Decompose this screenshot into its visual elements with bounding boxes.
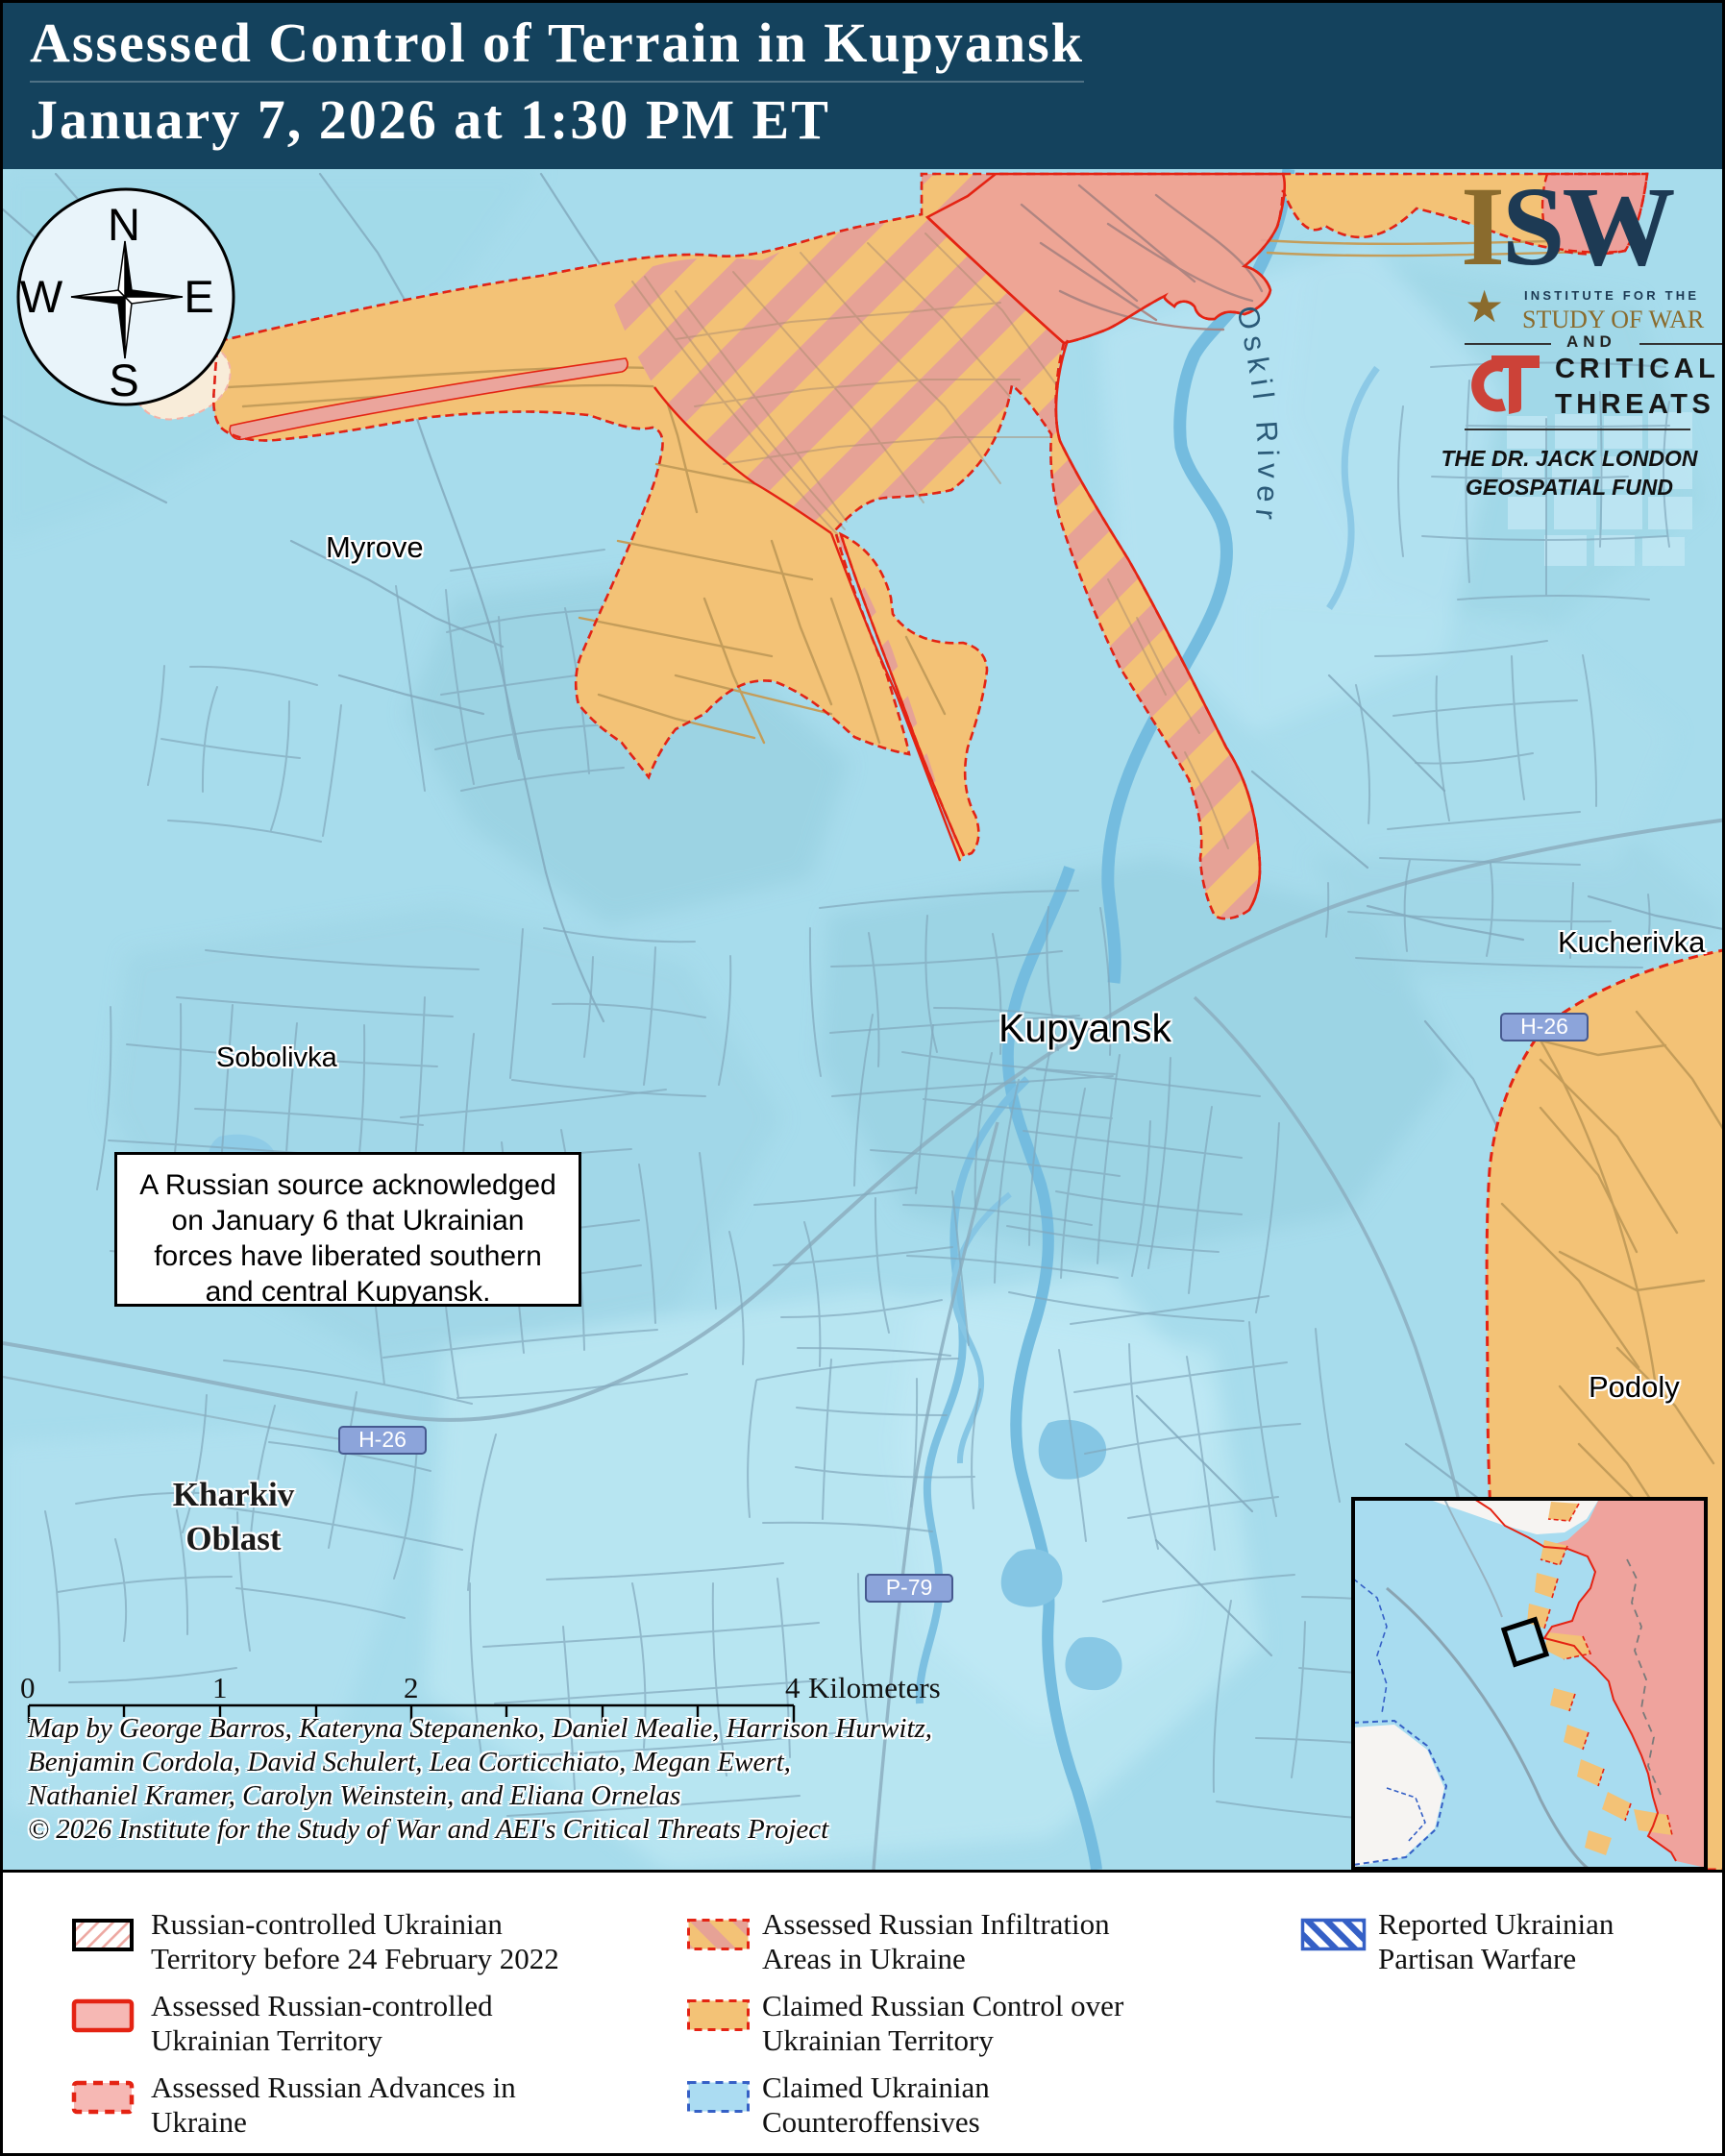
svg-text:E: E	[184, 271, 213, 322]
svg-text:N: N	[108, 199, 140, 250]
svg-text:S: S	[109, 355, 138, 405]
svg-text:W: W	[20, 271, 63, 322]
